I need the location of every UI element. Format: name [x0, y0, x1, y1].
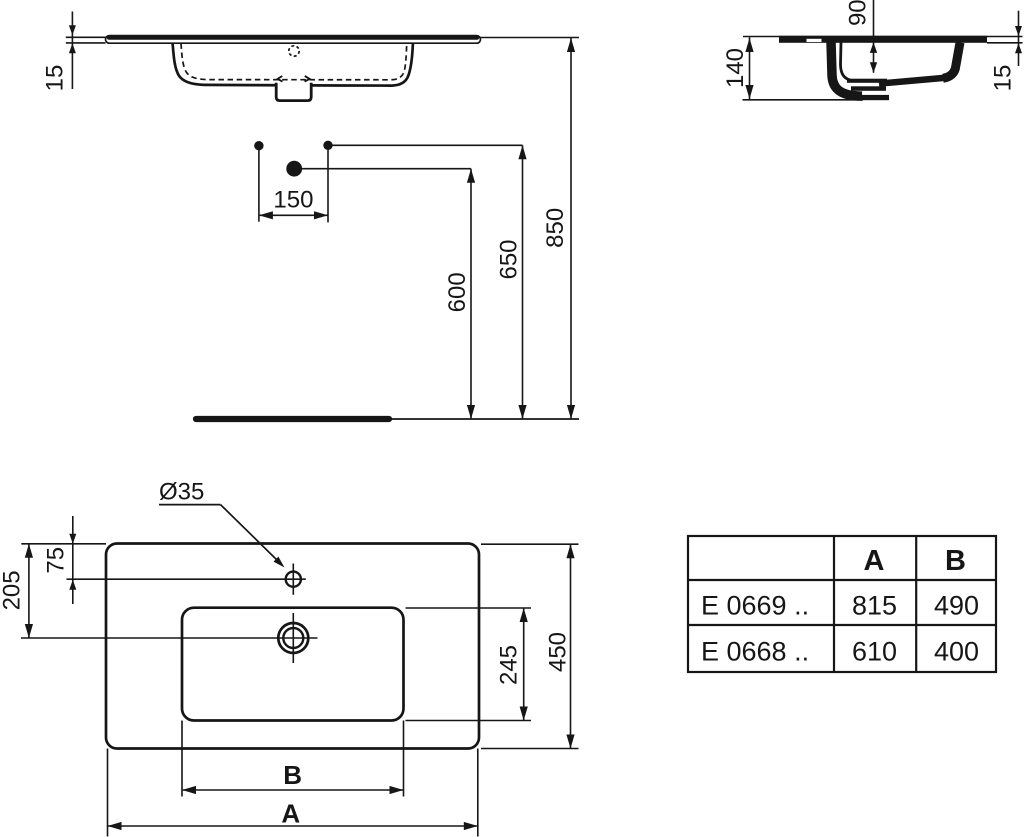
svg-text:75: 75	[43, 547, 70, 574]
svg-text:B: B	[283, 760, 302, 790]
svg-text:245: 245	[496, 645, 523, 685]
svg-text:E 0668 ..: E 0668 ..	[701, 637, 809, 667]
svg-text:140: 140	[722, 48, 749, 88]
svg-text:850: 850	[542, 208, 569, 248]
svg-text:150: 150	[273, 187, 313, 214]
svg-text:650: 650	[495, 239, 522, 279]
svg-text:815: 815	[852, 591, 897, 621]
svg-text:B: B	[945, 545, 966, 577]
svg-text:490: 490	[934, 591, 979, 621]
svg-text:15: 15	[990, 65, 1017, 92]
svg-text:205: 205	[0, 570, 25, 610]
svg-text:15: 15	[42, 65, 69, 92]
svg-text:A: A	[281, 799, 300, 829]
svg-text:A: A	[864, 545, 885, 577]
svg-text:90: 90	[845, 0, 872, 26]
svg-text:Ø35: Ø35	[159, 479, 204, 506]
svg-text:E 0669 ..: E 0669 ..	[701, 591, 809, 621]
svg-text:610: 610	[852, 637, 897, 667]
svg-text:450: 450	[545, 632, 572, 672]
svg-text:600: 600	[444, 272, 471, 312]
svg-text:400: 400	[934, 637, 979, 667]
